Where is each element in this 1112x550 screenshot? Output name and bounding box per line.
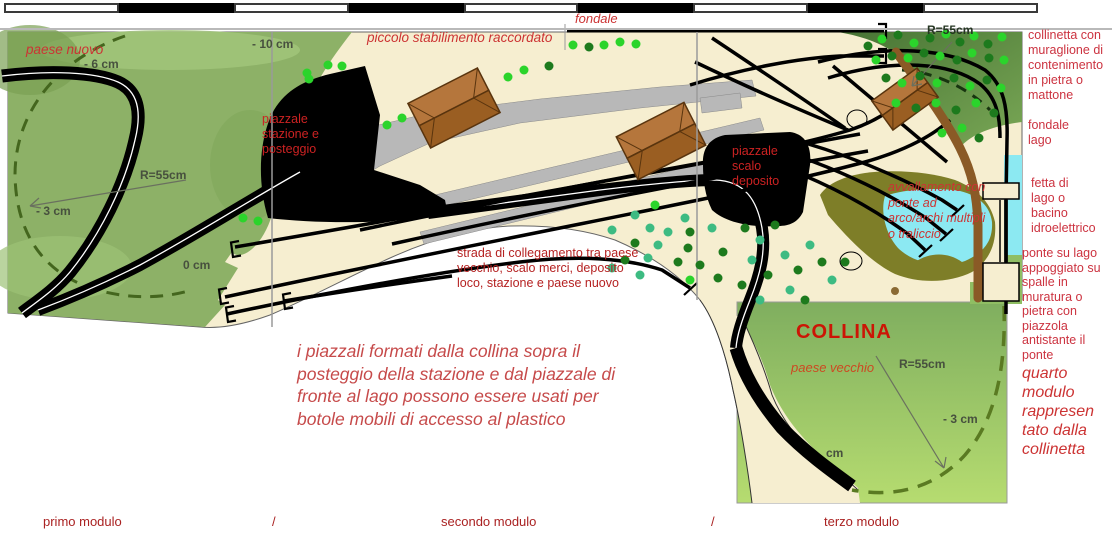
tree-icon bbox=[894, 31, 903, 40]
tree-icon bbox=[585, 43, 594, 52]
tree-icon bbox=[841, 258, 850, 267]
tree-icon bbox=[998, 33, 1007, 42]
tree-icon bbox=[950, 74, 959, 83]
tree-icon bbox=[878, 35, 887, 44]
tree-icon bbox=[926, 34, 935, 43]
tree-icon bbox=[938, 129, 947, 138]
tree-icon bbox=[985, 54, 994, 63]
scale-bar-segment bbox=[234, 3, 349, 13]
tree-icon bbox=[748, 256, 757, 265]
tree-icon bbox=[912, 104, 921, 113]
scale-bar bbox=[0, 0, 1112, 30]
scale-bar-segment bbox=[693, 3, 808, 13]
tree-icon bbox=[608, 264, 617, 273]
tree-icon bbox=[794, 266, 803, 275]
tree-icon bbox=[600, 41, 609, 50]
tree-icon bbox=[569, 41, 578, 50]
tree-icon bbox=[966, 82, 975, 91]
scale-bar-segment bbox=[4, 3, 119, 13]
tree-icon bbox=[942, 30, 951, 39]
tree-icon bbox=[686, 276, 695, 285]
tree-icon bbox=[741, 224, 750, 233]
tree-icon bbox=[684, 244, 693, 253]
tree-icon bbox=[818, 258, 827, 267]
tree-icon bbox=[872, 56, 881, 65]
tree-icon bbox=[756, 236, 765, 245]
tree-icon bbox=[958, 124, 967, 133]
tree-icon bbox=[932, 99, 941, 108]
scale-bar-segment bbox=[464, 3, 579, 13]
tree-icon bbox=[983, 76, 992, 85]
tree-icon bbox=[324, 61, 333, 70]
tree-icon bbox=[504, 73, 513, 82]
tree-icon bbox=[920, 49, 929, 58]
tree-icon bbox=[254, 217, 263, 226]
scale-bar-segment bbox=[578, 3, 693, 13]
tree-icon bbox=[608, 226, 617, 235]
tree-icon bbox=[801, 296, 810, 305]
tree-icon bbox=[786, 286, 795, 295]
tree-icon bbox=[646, 224, 655, 233]
tree-icon bbox=[714, 274, 723, 283]
tree-icon bbox=[686, 228, 695, 237]
scale-bar-segment bbox=[923, 3, 1038, 13]
tree-icon bbox=[970, 32, 979, 41]
tree-icon bbox=[910, 39, 919, 48]
tree-icon bbox=[997, 84, 1006, 93]
tree-icon bbox=[771, 221, 780, 230]
tree-icon bbox=[631, 211, 640, 220]
track-plan: paese nuovo - 6 cm - 10 cm fondale picco… bbox=[0, 0, 1112, 550]
tree-icon bbox=[756, 296, 765, 305]
tree-icon bbox=[696, 261, 705, 270]
scale-bar-segment bbox=[119, 3, 234, 13]
tree-icon bbox=[975, 134, 984, 143]
tree-icon bbox=[719, 248, 728, 257]
tree-icon bbox=[806, 241, 815, 250]
tree-icon bbox=[956, 38, 965, 47]
tree-icon bbox=[968, 49, 977, 58]
tree-icon bbox=[781, 251, 790, 260]
tree-icon bbox=[651, 201, 660, 210]
tree-icon bbox=[664, 228, 673, 237]
tree-icon bbox=[674, 258, 683, 267]
tree-icon bbox=[953, 56, 962, 65]
tree-icon bbox=[681, 214, 690, 223]
tree-icon bbox=[898, 79, 907, 88]
tree-icon bbox=[904, 54, 913, 63]
tree-icon bbox=[545, 62, 554, 71]
tree-icon bbox=[398, 114, 407, 123]
tree-icon bbox=[338, 62, 347, 71]
scale-bar-segment bbox=[808, 3, 923, 13]
tree-icon bbox=[621, 256, 630, 265]
tree-icon bbox=[383, 121, 392, 130]
tree-icon bbox=[984, 40, 993, 49]
tree-icon bbox=[936, 52, 945, 61]
tree-icon bbox=[616, 38, 625, 47]
tree-icon bbox=[305, 75, 314, 84]
scale-bar-segment bbox=[349, 3, 464, 13]
ruler-line bbox=[0, 28, 1112, 30]
tree-icon bbox=[708, 224, 717, 233]
track-plan-svg bbox=[0, 0, 1112, 550]
tree-icon bbox=[632, 40, 641, 49]
tree-icon bbox=[239, 214, 248, 223]
tree-icon bbox=[636, 271, 645, 280]
tree-icon bbox=[631, 239, 640, 248]
tree-icon bbox=[654, 241, 663, 250]
tree-icon bbox=[738, 281, 747, 290]
tree-icon bbox=[644, 254, 653, 263]
tree-icon bbox=[764, 271, 773, 280]
tree-icon bbox=[520, 66, 529, 75]
tree-icon bbox=[888, 52, 897, 61]
tree-icon bbox=[933, 79, 942, 88]
tree-icon bbox=[882, 74, 891, 83]
tree-icon bbox=[864, 42, 873, 51]
tree-icon bbox=[972, 99, 981, 108]
tree-icon bbox=[952, 106, 961, 115]
tree-icon bbox=[1000, 56, 1009, 65]
tree-icon bbox=[916, 72, 925, 81]
tree-icon bbox=[892, 99, 901, 108]
tree-icon bbox=[990, 109, 999, 118]
tree-icon bbox=[828, 276, 837, 285]
